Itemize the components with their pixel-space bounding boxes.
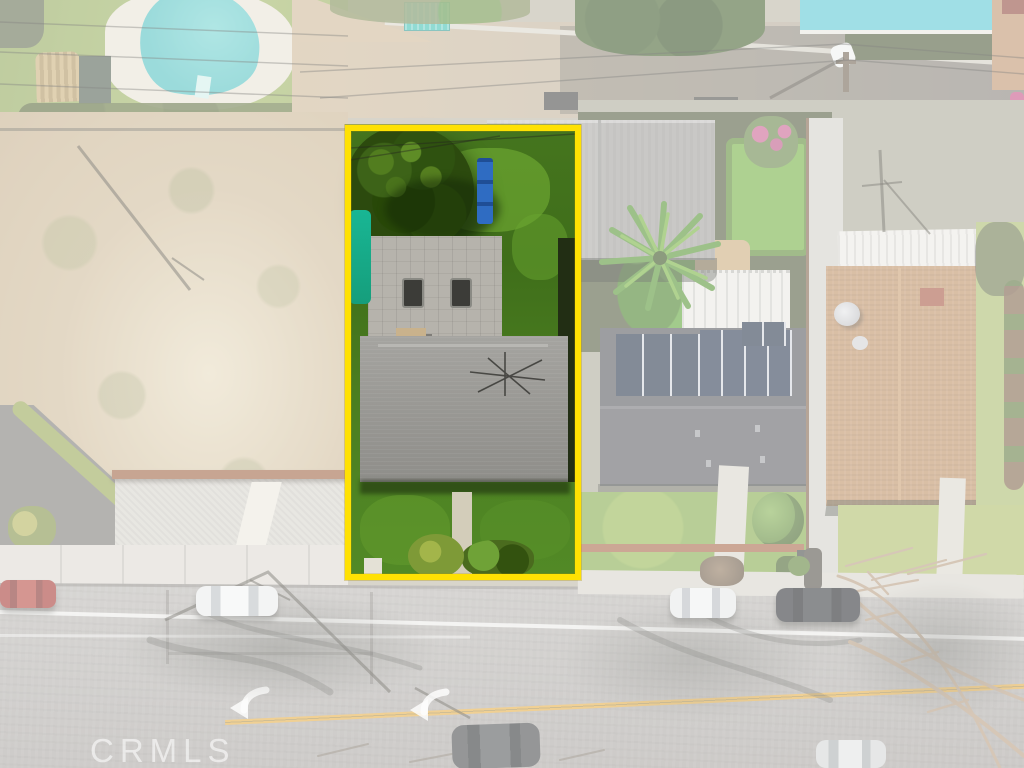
fade-band-right <box>581 125 1024 580</box>
crmls-watermark: CRMLS <box>90 732 236 768</box>
fade-band-top <box>0 0 1024 125</box>
fade-band-left <box>0 125 345 580</box>
property-boundary <box>345 125 581 580</box>
aerial-photo-canvas: CRMLS <box>0 0 1024 768</box>
